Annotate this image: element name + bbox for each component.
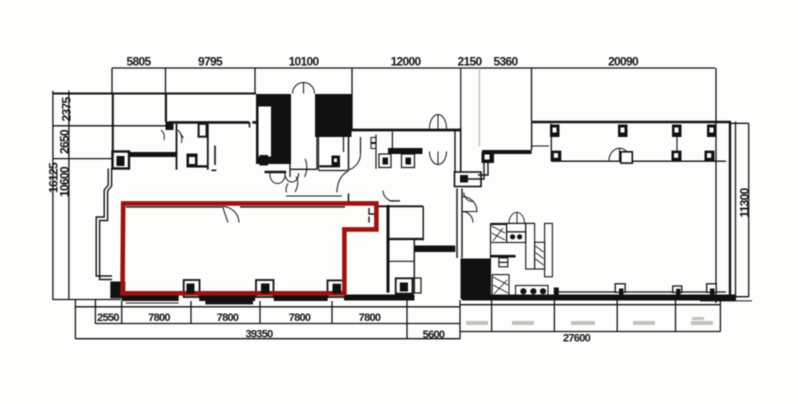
svg-text:10600: 10600 <box>58 166 72 197</box>
svg-text:2550: 2550 <box>97 312 119 324</box>
svg-text:5600: 5600 <box>423 329 445 341</box>
svg-text:7800: 7800 <box>359 312 381 324</box>
svg-text:7800: 7800 <box>217 312 239 324</box>
svg-text:27600: 27600 <box>563 333 591 345</box>
svg-text:2375: 2375 <box>60 97 74 122</box>
svg-text:2650: 2650 <box>58 129 72 154</box>
svg-text:20090: 20090 <box>608 55 639 69</box>
svg-text:39350: 39350 <box>245 329 273 341</box>
svg-text:2150: 2150 <box>458 55 483 69</box>
svg-text:5360: 5360 <box>494 55 519 69</box>
svg-text:7800: 7800 <box>289 312 311 324</box>
svg-text:12000: 12000 <box>391 55 422 69</box>
svg-text:10100: 10100 <box>289 55 320 69</box>
svg-text:9795: 9795 <box>198 55 223 69</box>
svg-text:7800: 7800 <box>148 312 170 324</box>
svg-text:5805: 5805 <box>127 55 152 69</box>
svg-text:11300: 11300 <box>738 187 752 217</box>
